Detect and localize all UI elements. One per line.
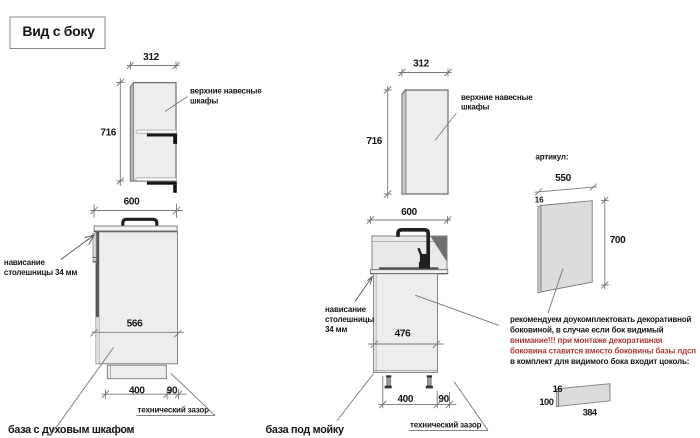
svg-text:566: 566: [127, 319, 143, 330]
svg-text:312: 312: [413, 59, 429, 70]
svg-text:90: 90: [438, 394, 449, 405]
svg-text:верхние навесные: верхние навесные: [190, 87, 262, 96]
svg-text:600: 600: [401, 207, 417, 218]
svg-text:312: 312: [143, 52, 159, 63]
svg-text:артикул:: артикул:: [535, 153, 568, 162]
svg-text:рекомендуем доукомплектовать д: рекомендуем доукомплектовать декоративно…: [510, 315, 692, 324]
svg-text:нависание: нависание: [325, 305, 367, 314]
svg-text:100: 100: [539, 397, 553, 407]
svg-text:600: 600: [124, 197, 140, 208]
svg-text:384: 384: [583, 407, 598, 417]
svg-text:шкафы: шкафы: [461, 103, 490, 112]
svg-text:технический зазор: технический зазор: [410, 420, 482, 429]
svg-text:550: 550: [555, 173, 571, 184]
svg-text:нависание: нависание: [4, 258, 46, 267]
svg-text:700: 700: [610, 235, 626, 246]
svg-text:база под мойку: база под мойку: [266, 424, 344, 436]
svg-text:шкафы: шкафы: [190, 97, 219, 106]
svg-text:16: 16: [535, 195, 544, 204]
svg-text:716: 716: [366, 136, 382, 147]
svg-text:столешницы 34 мм: столешницы 34 мм: [4, 268, 78, 277]
svg-text:716: 716: [100, 128, 116, 139]
svg-text:16: 16: [553, 384, 563, 394]
svg-text:внимание!!! при монтаже декора: внимание!!! при монтаже декоративная: [510, 336, 663, 345]
svg-text:технический зазор: технический зазор: [138, 405, 210, 414]
svg-text:боковиной, в случае если бок в: боковиной, в случае если бок видимый: [510, 326, 664, 335]
svg-text:в комплект для видимого бока в: в комплект для видимого бока входит цоко…: [510, 357, 689, 366]
svg-text:Вид с боку: Вид с боку: [22, 23, 95, 39]
svg-text:боковина ставится вместо боков: боковина ставится вместо боковины базы л…: [510, 346, 696, 355]
svg-text:90: 90: [167, 385, 178, 396]
svg-text:34 мм: 34 мм: [325, 325, 347, 334]
svg-text:476: 476: [395, 329, 411, 340]
svg-text:база с духовым шкафом: база с духовым шкафом: [8, 424, 135, 436]
svg-text:400: 400: [397, 394, 413, 405]
svg-text:верхние навесные: верхние навесные: [461, 93, 533, 102]
svg-text:400: 400: [129, 385, 145, 396]
svg-text:столешницы: столешницы: [325, 315, 374, 324]
